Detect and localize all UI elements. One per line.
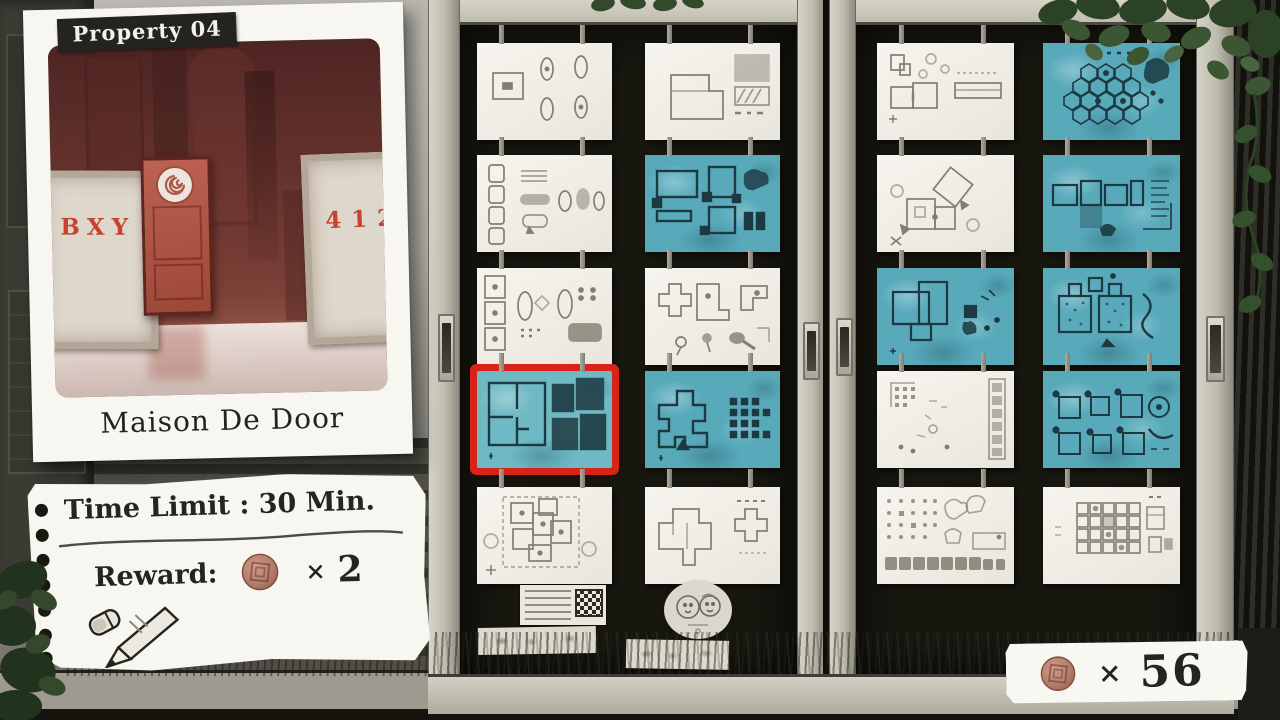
plan-sketch xyxy=(645,487,780,584)
card-pin xyxy=(748,137,753,156)
card-pin xyxy=(667,137,672,156)
plan-sketch xyxy=(477,43,612,140)
property-title: Maison De Door xyxy=(32,400,413,442)
reward-times-symbol: × xyxy=(305,555,326,585)
card-pin xyxy=(499,25,504,44)
ivy-leaves-small xyxy=(585,0,715,22)
card-pin xyxy=(1147,469,1152,488)
card-pin xyxy=(667,353,672,372)
plan-sketch xyxy=(645,155,780,252)
card-pin xyxy=(748,25,753,44)
reward-count: 2 xyxy=(337,548,363,591)
plan-sketch xyxy=(645,43,780,140)
plan-card-r8[interactable] xyxy=(1043,371,1180,468)
time-limit-text: Time Limit : 30 Min. xyxy=(64,485,376,526)
door-handle[interactable] xyxy=(836,318,853,376)
plan-card-r3[interactable] xyxy=(877,155,1014,252)
plan-card-l8[interactable] xyxy=(645,371,780,468)
photo-machinery xyxy=(244,71,278,262)
plan-sketch xyxy=(645,268,780,365)
card-pin xyxy=(899,353,904,372)
plan-sketch xyxy=(477,371,612,468)
plan-sketch xyxy=(877,487,1014,584)
sign-text: BXY xyxy=(60,214,135,241)
binder-hole xyxy=(35,504,48,517)
wallet-times-symbol: × xyxy=(1098,656,1122,690)
info-sticker xyxy=(520,585,606,625)
plan-sketch xyxy=(645,371,780,468)
plan-card-r5[interactable] xyxy=(877,268,1014,365)
plan-sketch xyxy=(877,155,1014,252)
card-pin xyxy=(899,250,904,269)
door-panel xyxy=(152,205,202,260)
card-pin xyxy=(499,137,504,156)
card-pin xyxy=(580,353,585,372)
plan-card-l6[interactable] xyxy=(645,268,780,365)
card-pin xyxy=(667,469,672,488)
card-pin xyxy=(981,25,986,44)
coin-icon xyxy=(1040,655,1077,692)
plan-card-r1[interactable] xyxy=(877,43,1014,140)
plan-card-r10[interactable] xyxy=(1043,487,1180,584)
plan-card-l1[interactable] xyxy=(477,43,612,140)
coin-wallet-badge: × 56 xyxy=(1005,638,1248,706)
card-pin xyxy=(667,25,672,44)
plan-card-l7-selected[interactable] xyxy=(477,371,612,468)
card-pin xyxy=(748,353,753,372)
plan-sketch xyxy=(1043,487,1180,584)
qr-icon xyxy=(576,590,602,616)
card-pin xyxy=(748,469,753,488)
plan-sketch xyxy=(877,43,1014,140)
red-door xyxy=(140,156,214,316)
card-pin xyxy=(580,469,585,488)
card-pin xyxy=(981,353,986,372)
photo-machinery xyxy=(84,54,145,181)
card-pin xyxy=(667,250,672,269)
plan-card-l10[interactable] xyxy=(645,487,780,584)
sign-text: 412 xyxy=(325,204,388,234)
card-pin xyxy=(899,25,904,44)
faces-doodle-icon xyxy=(664,581,732,639)
plan-sketch xyxy=(877,371,1014,468)
card-pin xyxy=(899,137,904,156)
plan-card-r9[interactable] xyxy=(877,487,1014,584)
photo-sign-right: 412 xyxy=(301,150,388,345)
plan-card-r7[interactable] xyxy=(877,371,1014,468)
door-handle[interactable] xyxy=(438,314,455,382)
wallet-count: 56 xyxy=(1139,645,1205,698)
card-pin xyxy=(748,250,753,269)
card-pin xyxy=(499,469,504,488)
ivy-leaves xyxy=(1018,0,1280,340)
property-card: BXY 412 Property 04 Maison De Door xyxy=(23,2,413,463)
card-pin xyxy=(1147,353,1152,372)
card-pin xyxy=(981,137,986,156)
card-pin xyxy=(499,250,504,269)
plan-card-l2[interactable] xyxy=(645,43,780,140)
plan-sketch xyxy=(877,268,1014,365)
card-pin xyxy=(1065,469,1070,488)
property-photo: BXY 412 xyxy=(48,38,388,397)
plan-sketch xyxy=(477,155,612,252)
card-pin xyxy=(981,250,986,269)
card-pin xyxy=(981,469,986,488)
plan-sketch xyxy=(477,487,612,584)
sticker-text-lines xyxy=(525,590,571,620)
plan-card-l5[interactable] xyxy=(477,268,612,365)
plan-card-l3[interactable] xyxy=(477,155,612,252)
face-sticker xyxy=(664,581,732,639)
door-panel xyxy=(154,263,204,300)
card-pin xyxy=(1065,353,1070,372)
card-pin xyxy=(580,25,585,44)
door-handle[interactable] xyxy=(803,322,820,380)
spiral-emblem-icon xyxy=(158,168,193,203)
plan-sketch xyxy=(1043,371,1180,468)
plan-card-l9[interactable] xyxy=(477,487,612,584)
shop-scene: BXY 412 Property 04 Maison De Door xyxy=(0,0,1280,720)
plan-card-l4[interactable] xyxy=(645,155,780,252)
card-pin xyxy=(499,353,504,372)
plan-sketch xyxy=(477,268,612,365)
coin-icon xyxy=(241,552,280,591)
door-gap xyxy=(823,0,829,711)
card-pin xyxy=(580,137,585,156)
card-pin xyxy=(580,250,585,269)
card-pin xyxy=(899,469,904,488)
bush-leaves xyxy=(0,540,110,720)
reward-label: Reward: xyxy=(94,558,218,593)
